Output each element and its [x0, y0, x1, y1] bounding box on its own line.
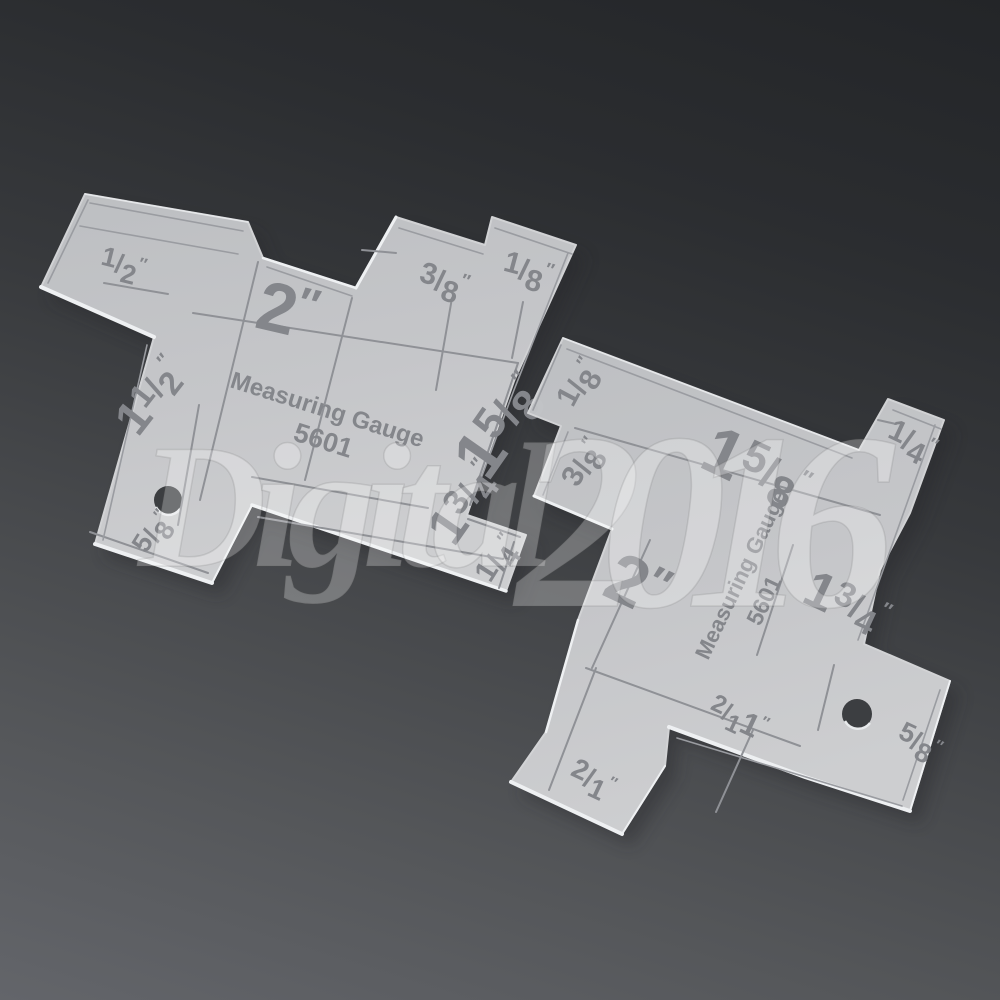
- svg-text:Digital2016: Digital2016: [136, 381, 896, 661]
